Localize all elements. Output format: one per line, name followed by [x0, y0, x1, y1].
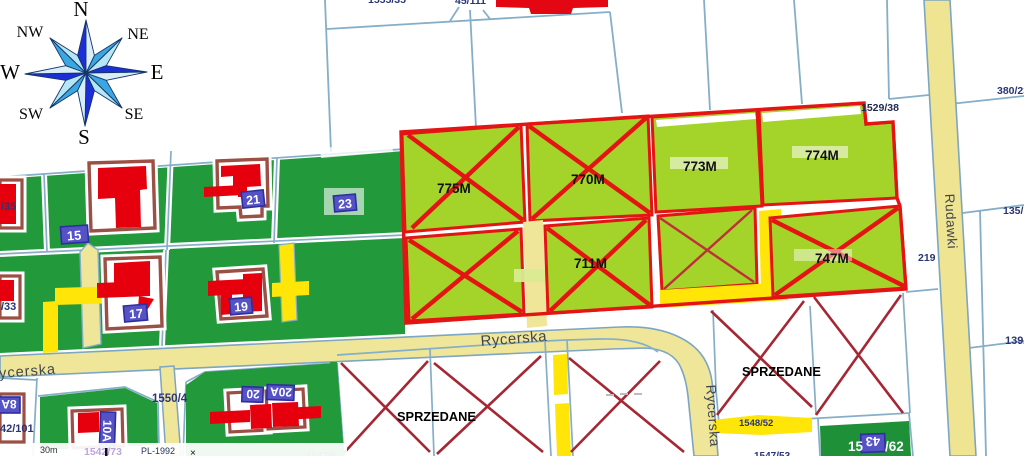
svg-text:19: 19	[234, 299, 249, 314]
svg-text:15: 15	[66, 228, 81, 244]
svg-text:N: N	[73, 0, 88, 21]
svg-text:W: W	[0, 60, 20, 84]
svg-text:15: 15	[848, 439, 864, 454]
svg-text:SW: SW	[19, 106, 44, 123]
svg-text:774M: 774M	[805, 148, 839, 163]
svg-text:1542/73: 1542/73	[84, 446, 122, 456]
svg-text:219: 219	[918, 252, 936, 264]
svg-text:E: E	[151, 60, 164, 84]
svg-text:30m: 30m	[40, 445, 58, 455]
svg-text:21: 21	[245, 192, 260, 207]
svg-text:770M: 770M	[571, 172, 605, 187]
svg-text:135/1: 135/1	[1003, 205, 1024, 217]
svg-text:10A: 10A	[100, 420, 115, 443]
svg-text:20A: 20A	[269, 385, 292, 400]
svg-text:43: 43	[865, 434, 880, 449]
svg-text:45/111: 45/111	[455, 0, 486, 7]
svg-text:SPRZEDANE: SPRZEDANE	[742, 364, 821, 379]
svg-text:/62: /62	[885, 439, 904, 454]
svg-text:Rudawki: Rudawki	[942, 193, 960, 249]
svg-text:139/: 139/	[1005, 335, 1024, 347]
svg-text:/35: /35	[1, 201, 16, 213]
svg-text:PL-1992: PL-1992	[141, 446, 175, 456]
svg-text:×: ×	[190, 448, 196, 456]
svg-text:42/101: 42/101	[0, 423, 34, 435]
svg-text:8A: 8A	[1, 397, 17, 411]
svg-text:NW: NW	[17, 24, 45, 41]
svg-text:SPRZEDANE: SPRZEDANE	[397, 409, 476, 424]
svg-text:20: 20	[246, 387, 260, 401]
svg-text:23: 23	[338, 196, 353, 211]
svg-text:380/23: 380/23	[997, 85, 1024, 97]
svg-text:/33: /33	[1, 301, 16, 313]
svg-text:1547/53: 1547/53	[754, 451, 791, 456]
svg-text:17: 17	[129, 306, 144, 321]
svg-text:S: S	[78, 125, 90, 149]
svg-text:1550/4: 1550/4	[152, 393, 188, 405]
svg-text:1555/35: 1555/35	[368, 0, 406, 6]
svg-text:1529/38: 1529/38	[861, 102, 899, 114]
svg-text:773M: 773M	[683, 159, 717, 174]
svg-text:1548/52: 1548/52	[739, 418, 773, 429]
svg-text:SE: SE	[125, 106, 144, 123]
svg-text:711M: 711M	[574, 256, 607, 271]
svg-text:NE: NE	[127, 26, 148, 43]
svg-text:747M: 747M	[815, 251, 849, 266]
svg-text:775M: 775M	[437, 181, 471, 196]
